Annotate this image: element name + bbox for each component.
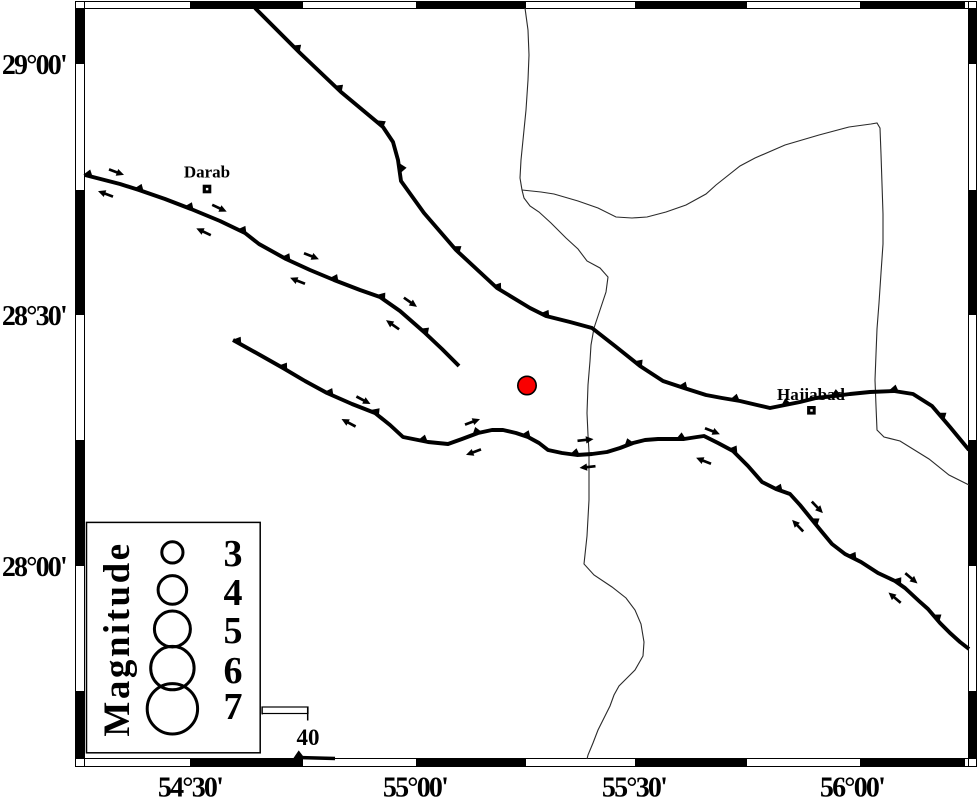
svg-text:Darab: Darab: [184, 163, 230, 182]
svg-text:7: 7: [224, 686, 243, 728]
svg-text:Hajiabad: Hajiabad: [777, 385, 846, 404]
svg-text:29°00': 29°00': [2, 50, 66, 81]
svg-text:4: 4: [224, 572, 243, 614]
svg-text:55°00': 55°00': [383, 773, 447, 798]
svg-text:40: 40: [297, 725, 320, 750]
svg-text:56°00': 56°00': [820, 773, 884, 798]
svg-text:Magnitude: Magnitude: [97, 541, 138, 736]
svg-text:5: 5: [224, 610, 243, 652]
svg-text:55°30': 55°30': [602, 773, 666, 798]
svg-text:3: 3: [224, 533, 243, 575]
svg-text:28°30': 28°30': [2, 301, 66, 332]
svg-text:54°30': 54°30': [158, 773, 222, 798]
svg-text:28°00': 28°00': [2, 552, 66, 583]
